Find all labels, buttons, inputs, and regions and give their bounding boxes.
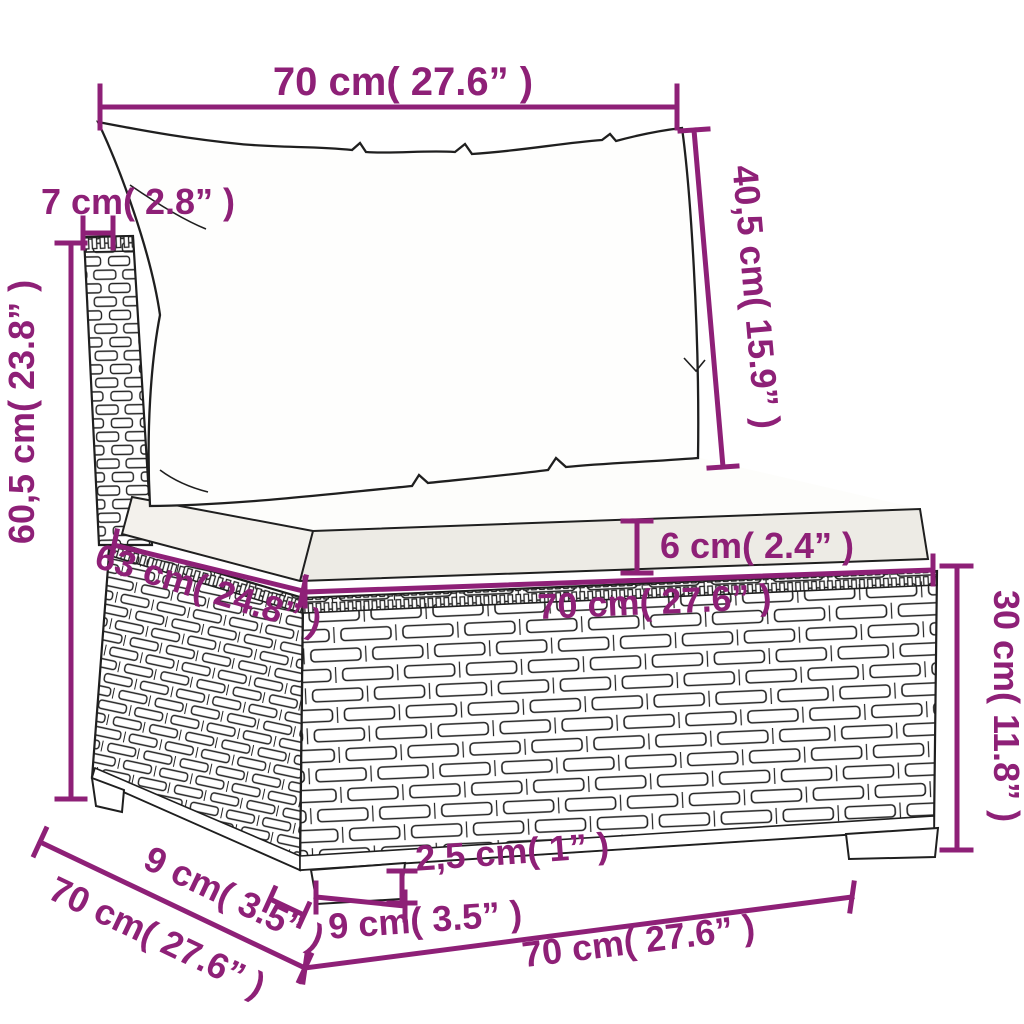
back-cushion	[98, 122, 705, 506]
dim-label-back-thickness: 7 cm( 2.8” )	[41, 181, 235, 222]
front-right-leg	[846, 828, 938, 859]
sofa-dimension-drawing: 70 cm( 27.6” ) 7 cm( 2.8” ) 40,5 cm( 15.…	[0, 0, 1024, 1024]
back-post-top-trim	[84, 236, 134, 252]
dim-label-back-width-top: 70 cm( 27.6” )	[273, 60, 533, 104]
dim-label-seat-cushion-thickness: 6 cm( 2.4” )	[660, 525, 854, 566]
product-dimension-diagram: 70 cm( 27.6” ) 7 cm( 2.8” ) 40,5 cm( 15.…	[0, 0, 1024, 1024]
dim-label-base-height: 30 cm( 11.8” )	[986, 590, 1024, 822]
dim-label-total-height: 60,5 cm( 23.8” )	[1, 280, 42, 544]
back-cushion-body	[98, 122, 698, 506]
